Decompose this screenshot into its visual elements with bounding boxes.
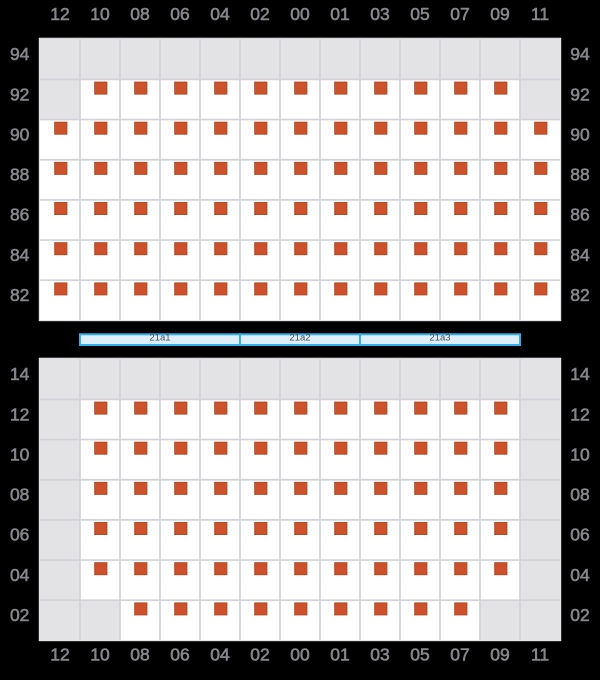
svg-text:82: 82 — [570, 285, 589, 305]
svg-text:06: 06 — [10, 525, 29, 545]
svg-text:12: 12 — [50, 4, 69, 24]
svg-text:88: 88 — [570, 165, 589, 185]
svg-text:21a1: 21a1 — [149, 333, 170, 344]
svg-text:11: 11 — [531, 645, 549, 665]
svg-text:14: 14 — [10, 364, 30, 384]
svg-text:06: 06 — [170, 645, 189, 665]
svg-text:03: 03 — [370, 645, 389, 665]
svg-text:10: 10 — [90, 4, 110, 24]
svg-text:02: 02 — [10, 605, 29, 625]
svg-text:08: 08 — [130, 4, 149, 24]
svg-text:08: 08 — [10, 485, 29, 505]
svg-text:92: 92 — [570, 84, 589, 104]
svg-text:07: 07 — [450, 4, 469, 24]
svg-text:94: 94 — [10, 44, 30, 64]
svg-text:88: 88 — [10, 165, 29, 185]
svg-text:07: 07 — [450, 645, 469, 665]
svg-text:11: 11 — [531, 4, 549, 24]
svg-text:90: 90 — [570, 124, 590, 144]
svg-text:12: 12 — [10, 404, 29, 424]
svg-text:86: 86 — [570, 205, 589, 225]
svg-text:04: 04 — [10, 565, 30, 585]
svg-text:02: 02 — [250, 645, 269, 665]
svg-text:08: 08 — [130, 645, 149, 665]
svg-text:00: 00 — [290, 4, 310, 24]
svg-text:10: 10 — [90, 645, 110, 665]
svg-text:01: 01 — [330, 4, 349, 24]
svg-text:05: 05 — [410, 645, 429, 665]
svg-text:94: 94 — [570, 44, 590, 64]
svg-text:01: 01 — [330, 645, 349, 665]
svg-text:92: 92 — [10, 84, 29, 104]
svg-text:05: 05 — [410, 4, 429, 24]
svg-text:21a2: 21a2 — [289, 333, 310, 344]
svg-text:10: 10 — [570, 444, 590, 464]
svg-text:86: 86 — [10, 205, 29, 225]
svg-text:90: 90 — [10, 124, 30, 144]
svg-text:12: 12 — [50, 645, 69, 665]
svg-text:09: 09 — [490, 645, 509, 665]
svg-text:10: 10 — [10, 444, 30, 464]
svg-text:12: 12 — [570, 404, 589, 424]
svg-text:84: 84 — [10, 245, 30, 265]
svg-text:21a3: 21a3 — [429, 333, 450, 344]
svg-text:06: 06 — [570, 525, 589, 545]
svg-text:03: 03 — [370, 4, 389, 24]
svg-text:04: 04 — [210, 645, 230, 665]
svg-text:06: 06 — [170, 4, 189, 24]
svg-text:08: 08 — [570, 485, 589, 505]
svg-text:02: 02 — [570, 605, 589, 625]
svg-text:14: 14 — [570, 364, 590, 384]
svg-text:09: 09 — [490, 4, 509, 24]
svg-text:04: 04 — [210, 4, 230, 24]
svg-text:82: 82 — [10, 285, 29, 305]
svg-text:02: 02 — [250, 4, 269, 24]
svg-text:84: 84 — [570, 245, 590, 265]
svg-text:00: 00 — [290, 645, 310, 665]
svg-text:04: 04 — [570, 565, 590, 585]
